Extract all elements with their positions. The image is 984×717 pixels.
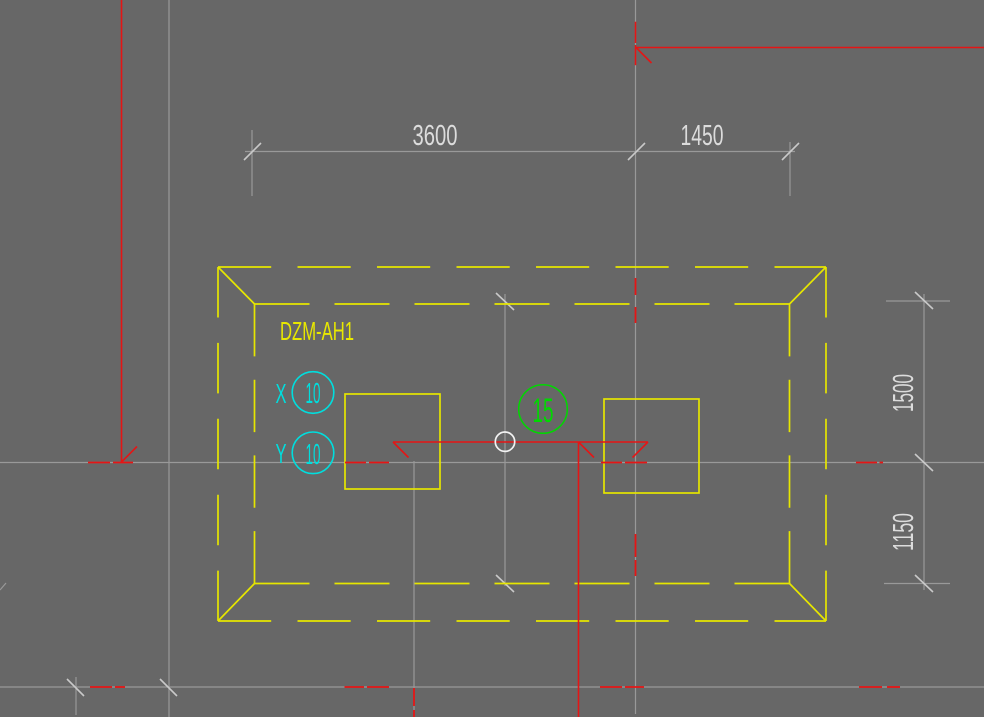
svg-text:1150: 1150: [888, 513, 920, 551]
svg-text:10: 10: [306, 378, 321, 410]
svg-text:1500: 1500: [888, 374, 920, 412]
svg-text:1450: 1450: [681, 120, 724, 152]
svg-text:DZM-AH1: DZM-AH1: [280, 316, 354, 346]
svg-text:10: 10: [306, 439, 321, 471]
svg-text:3600: 3600: [413, 120, 458, 152]
svg-text:X: X: [276, 378, 287, 409]
svg-text:Y: Y: [276, 438, 287, 469]
svg-text:15: 15: [533, 392, 554, 430]
